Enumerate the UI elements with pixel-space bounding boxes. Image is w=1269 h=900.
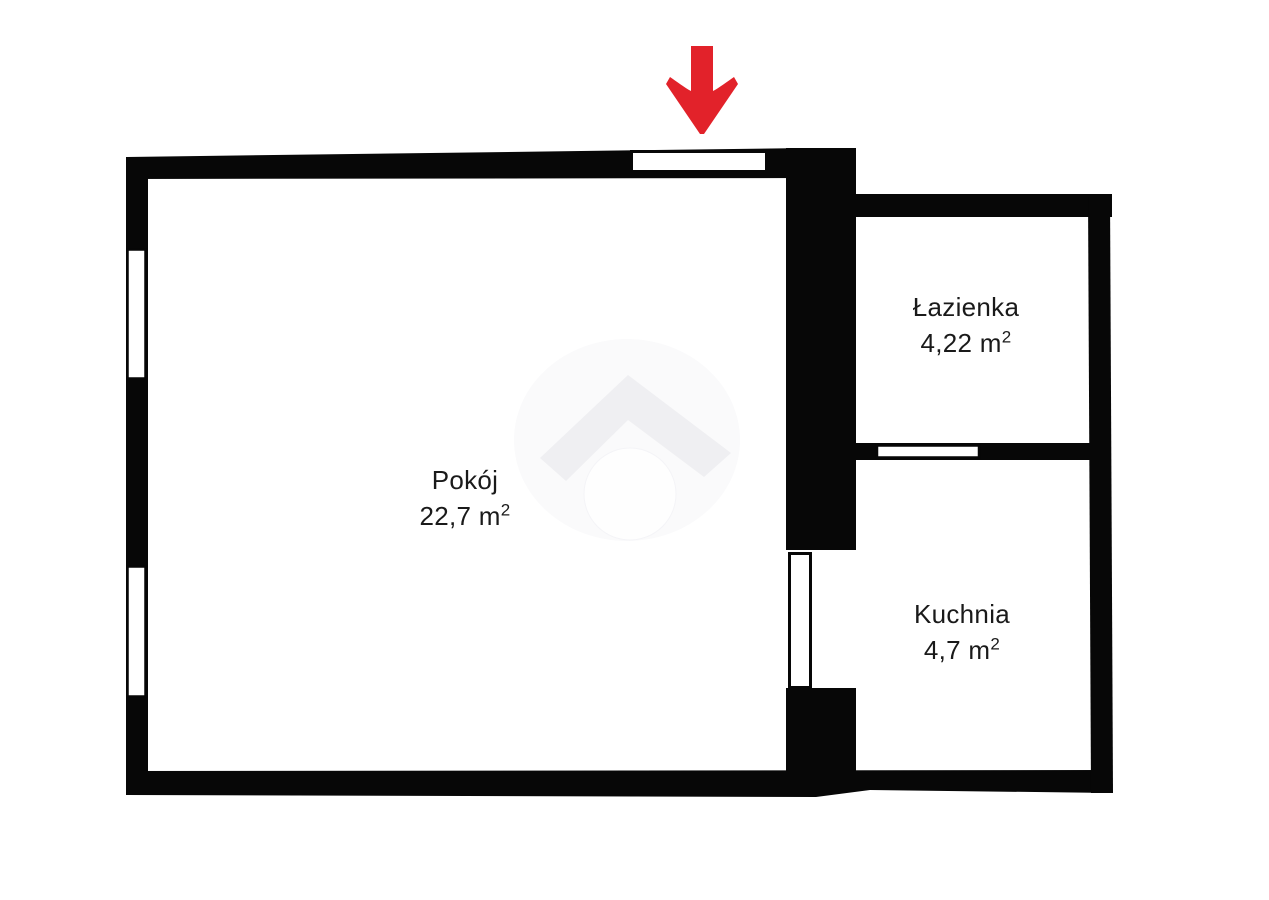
watermark-logo (514, 339, 740, 541)
entrance-door (632, 152, 767, 172)
room-label-kuchnia: Kuchnia 4,7 m2 (914, 596, 1010, 668)
floorplan: Pokój 22,7 m2 Łazienka 4,22 m2 Kuchnia 4… (0, 0, 1269, 900)
room-area-value-pokoj: 22,7 m (419, 501, 500, 531)
room-label-lazienka: Łazienka 4,22 m2 (913, 289, 1019, 361)
room-name-lazienka: Łazienka (913, 289, 1019, 325)
room-area-sup-kuchnia: 2 (990, 634, 1000, 653)
room-area-value-lazienka: 4,22 m (920, 328, 1001, 358)
watermark-circle (584, 448, 676, 540)
room-label-pokoj: Pokój 22,7 m2 (419, 462, 510, 534)
room-name-kuchnia: Kuchnia (914, 596, 1010, 632)
room-area-lazienka: 4,22 m2 (913, 325, 1019, 361)
door-room-to-kitchen (790, 554, 811, 688)
room-area-sup-pokoj: 2 (501, 500, 511, 519)
wall-right-section-top (800, 194, 1112, 217)
room-area-sup-lazienka: 2 (1002, 327, 1012, 346)
room-name-pokoj: Pokój (419, 462, 510, 498)
wall-right (1088, 194, 1113, 793)
floorplan-svg (0, 0, 1269, 900)
room-area-value-kuchnia: 4,7 m (924, 635, 991, 665)
entrance-arrow-icon (666, 46, 738, 134)
room-area-kuchnia: 4,7 m2 (914, 632, 1010, 668)
room-area-pokoj: 22,7 m2 (419, 498, 510, 534)
wall-divider-lower (786, 688, 856, 780)
wall-bottom (126, 770, 1112, 797)
door-bathroom (877, 446, 979, 458)
window-upper-left (128, 250, 146, 379)
window-lower-left (128, 567, 146, 697)
